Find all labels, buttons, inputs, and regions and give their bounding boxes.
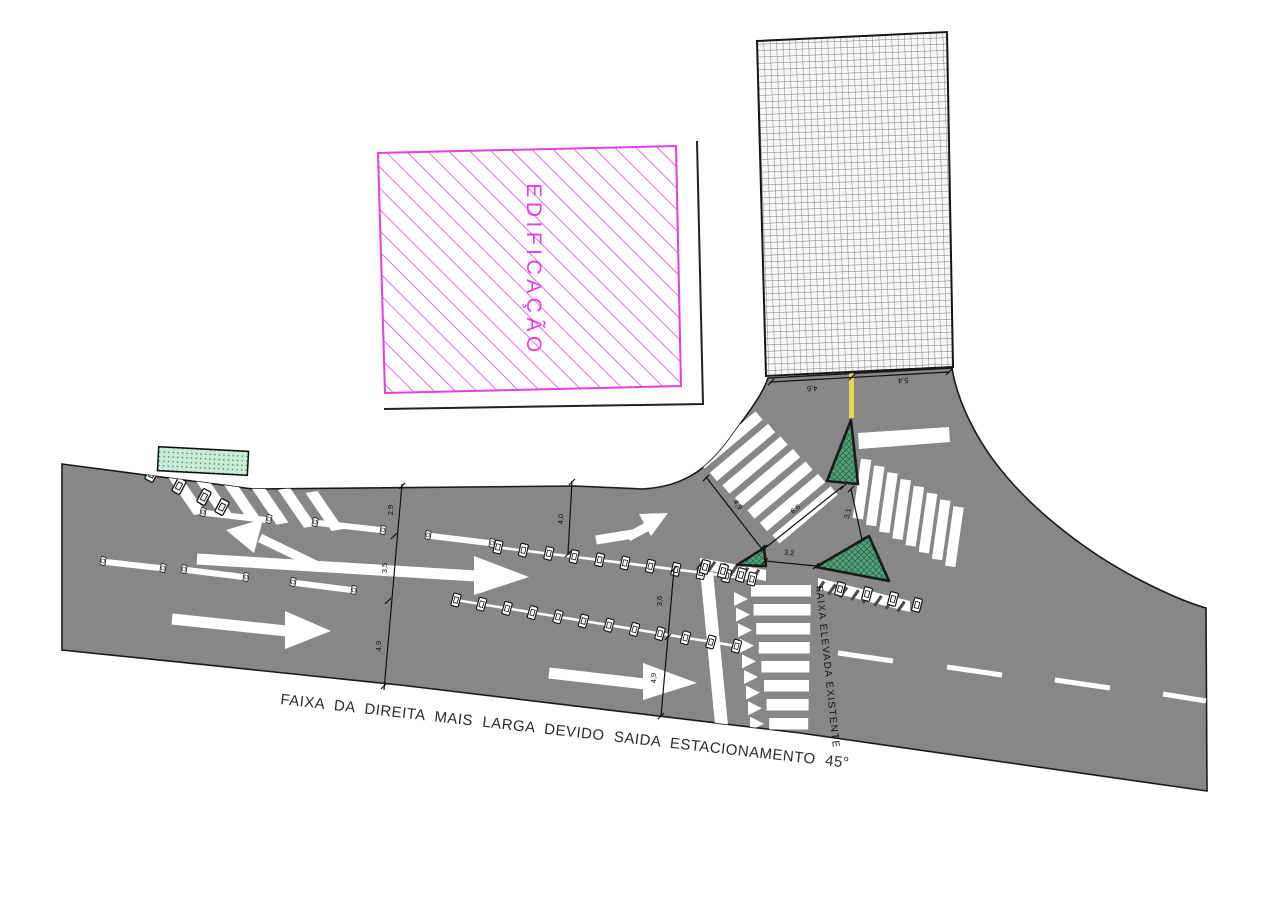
road-stud [243, 573, 249, 582]
dim-street-right: 5,4 [898, 376, 909, 386]
dim-sec1-a: 2,9 [386, 505, 395, 515]
road-stud [425, 531, 431, 540]
crosswalk-bar [756, 623, 810, 635]
sidewalk-parklet [157, 447, 248, 476]
building-lot: EDIFICAÇÃO [378, 141, 703, 409]
road-stud [290, 578, 296, 587]
dim-sec2-a: 4,0 [556, 514, 565, 524]
road-stud [160, 564, 166, 573]
dim-sec2-b: 3,6 [655, 596, 664, 606]
road-stud [200, 508, 206, 517]
dim-sec1-b: 3,5 [380, 563, 389, 573]
road-stud [266, 515, 272, 524]
road-stud [100, 557, 106, 566]
crosswalk-bar [761, 661, 809, 673]
crosswalk-bar [759, 642, 810, 654]
crosswalk-bar [764, 680, 809, 692]
dim-sec1-c: 4,9 [374, 641, 383, 651]
dim-island-gap: 3,2 [784, 547, 795, 557]
site-plan-page: EDIFICAÇÃO [0, 0, 1280, 904]
road-stud [351, 586, 357, 595]
dim-street-left: 4,6 [807, 384, 818, 394]
road-stud [312, 518, 318, 527]
paved-plaza-grid [757, 32, 953, 376]
building-label: EDIFICAÇÃO [522, 183, 546, 356]
road-stud [489, 539, 495, 548]
crosswalk-bar [751, 585, 811, 597]
crosswalk-bar [754, 604, 811, 616]
road-stud [380, 526, 386, 535]
site-plan-drawing: EDIFICAÇÃO [0, 0, 1280, 904]
crosswalk-bar [769, 718, 808, 730]
dim-sec2-c: 4,9 [649, 673, 658, 683]
road-stud [181, 565, 187, 574]
crosswalk-bar [767, 699, 809, 711]
